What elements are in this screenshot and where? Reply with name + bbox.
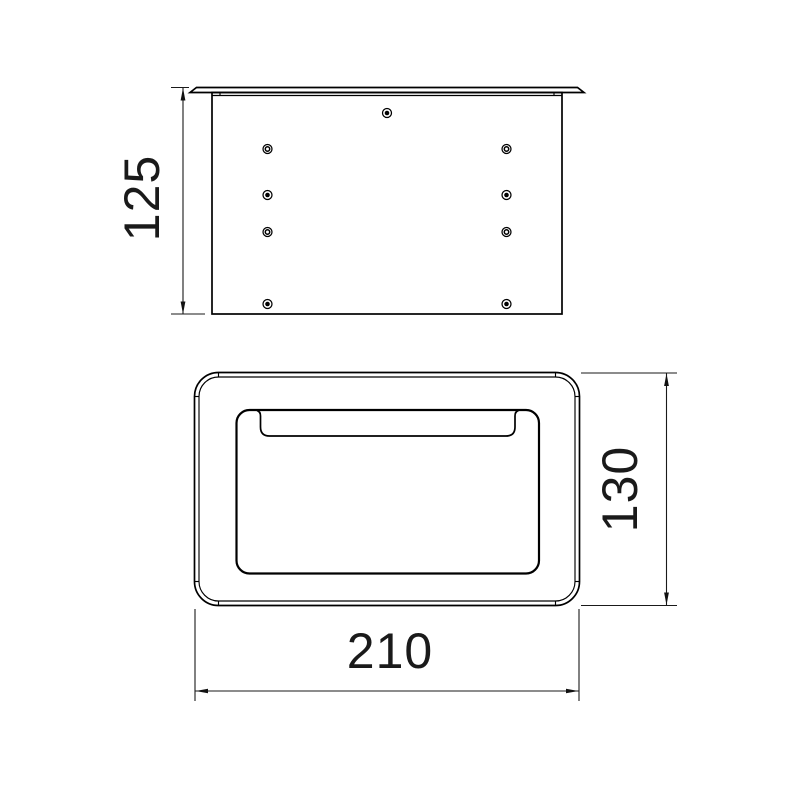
arrowhead-left-icon [196,689,209,694]
screw-icon [502,191,511,200]
screw-icon [502,145,511,154]
arrowhead-right-icon [566,689,579,694]
dimension-text-width: 210 [347,623,433,679]
dimension-125: 125 [114,88,205,315]
arrowhead-up-icon [664,374,669,387]
corner-tangent-ticks [195,373,580,606]
arrowhead-down-icon [664,593,669,606]
plan-view: 210 130 [195,373,678,702]
lid-outline [237,410,540,574]
screw-icon [502,228,511,237]
screw-icon [383,109,392,118]
fastener-group [263,109,511,309]
screw-icon [263,300,272,309]
side-view: 125 [114,88,584,315]
dimension-210: 210 [195,609,579,701]
screw-icon [502,300,511,309]
frame-outer-outline [195,373,580,606]
technical-drawing: 125 [0,0,800,800]
drawing-canvas: 125 [0,0,800,800]
lid-finger-recess [257,411,519,437]
screw-icon [263,145,272,154]
screw-icon [263,191,272,200]
box-outline [212,93,562,315]
screw-icon [263,228,272,237]
arrowhead-up-icon [181,88,186,101]
dimension-text-height: 125 [114,155,170,241]
arrowhead-down-icon [181,302,186,315]
dimension-130: 130 [581,373,677,606]
dimension-text-depth: 130 [592,446,648,532]
